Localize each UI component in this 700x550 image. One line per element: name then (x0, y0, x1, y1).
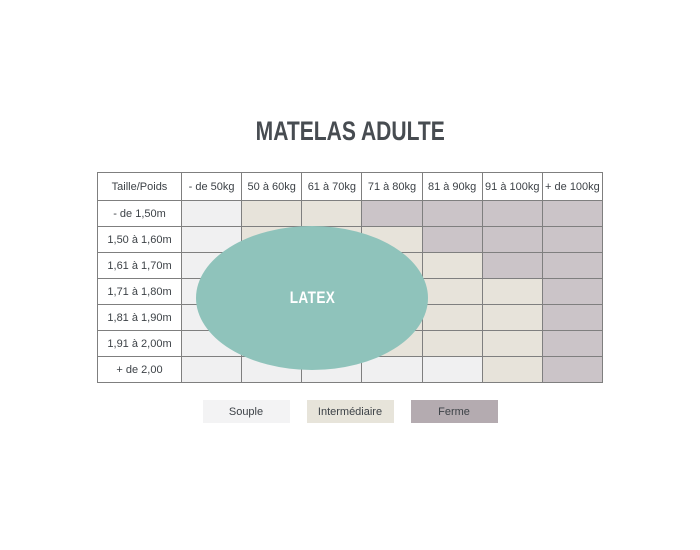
height-row-label: + de 2,00 (98, 357, 182, 383)
height-row-label: 1,71 à 1,80m (98, 279, 182, 305)
weight-column-header: + de 100kg (542, 173, 602, 201)
firmness-cell (482, 357, 542, 383)
legend-item-souple: Souple (203, 400, 290, 423)
firmness-cell (482, 331, 542, 357)
firmness-cell (422, 253, 482, 279)
firmness-cell (542, 357, 602, 383)
height-row-label: - de 1,50m (98, 201, 182, 227)
firmness-legend: Souple Intermédiaire Ferme (0, 400, 700, 423)
firmness-cell (482, 227, 542, 253)
table-row: - de 1,50m (98, 201, 603, 227)
firmness-cell (422, 279, 482, 305)
firmness-cell (542, 279, 602, 305)
legend-item-intermediaire: Intermédiaire (307, 400, 394, 423)
height-row-label: 1,81 à 1,90m (98, 305, 182, 331)
table-header: Taille/Poids - de 50kg50 à 60kg61 à 70kg… (98, 173, 603, 201)
firmness-cell (422, 227, 482, 253)
firmness-cell (422, 331, 482, 357)
mattress-firmness-chart: MATELAS ADULTE Taille/Poids - de 50kg50 … (0, 0, 700, 550)
firmness-cell (242, 201, 302, 227)
height-row-label: 1,61 à 1,70m (98, 253, 182, 279)
firmness-cell (482, 201, 542, 227)
firmness-cell (542, 201, 602, 227)
height-row-label: 1,91 à 2,00m (98, 331, 182, 357)
latex-overlay-label: LATEX (289, 288, 335, 308)
legend-item-ferme: Ferme (411, 400, 498, 423)
firmness-cell (362, 357, 422, 383)
firmness-cell (482, 253, 542, 279)
corner-header: Taille/Poids (98, 173, 182, 201)
firmness-cell (422, 201, 482, 227)
page-title-text: MATELAS ADULTE (255, 116, 444, 147)
firmness-cell (542, 253, 602, 279)
firmness-cell (542, 227, 602, 253)
firmness-cell (482, 279, 542, 305)
page-title: MATELAS ADULTE (0, 116, 700, 147)
firmness-cell (302, 201, 362, 227)
firmness-cell (182, 201, 242, 227)
firmness-cell (422, 357, 482, 383)
firmness-cell (542, 305, 602, 331)
firmness-cell (422, 305, 482, 331)
weight-column-header: 81 à 90kg (422, 173, 482, 201)
weight-column-header: 71 à 80kg (362, 173, 422, 201)
firmness-cell (182, 357, 242, 383)
weight-column-header: 91 à 100kg (482, 173, 542, 201)
weight-column-header: 50 à 60kg (242, 173, 302, 201)
header-row: Taille/Poids - de 50kg50 à 60kg61 à 70kg… (98, 173, 603, 201)
firmness-cell (482, 305, 542, 331)
weight-column-header: 61 à 70kg (302, 173, 362, 201)
weight-column-header: - de 50kg (182, 173, 242, 201)
height-row-label: 1,50 à 1,60m (98, 227, 182, 253)
latex-overlay-ellipse: LATEX (196, 226, 428, 370)
firmness-cell (542, 331, 602, 357)
firmness-cell (362, 201, 422, 227)
